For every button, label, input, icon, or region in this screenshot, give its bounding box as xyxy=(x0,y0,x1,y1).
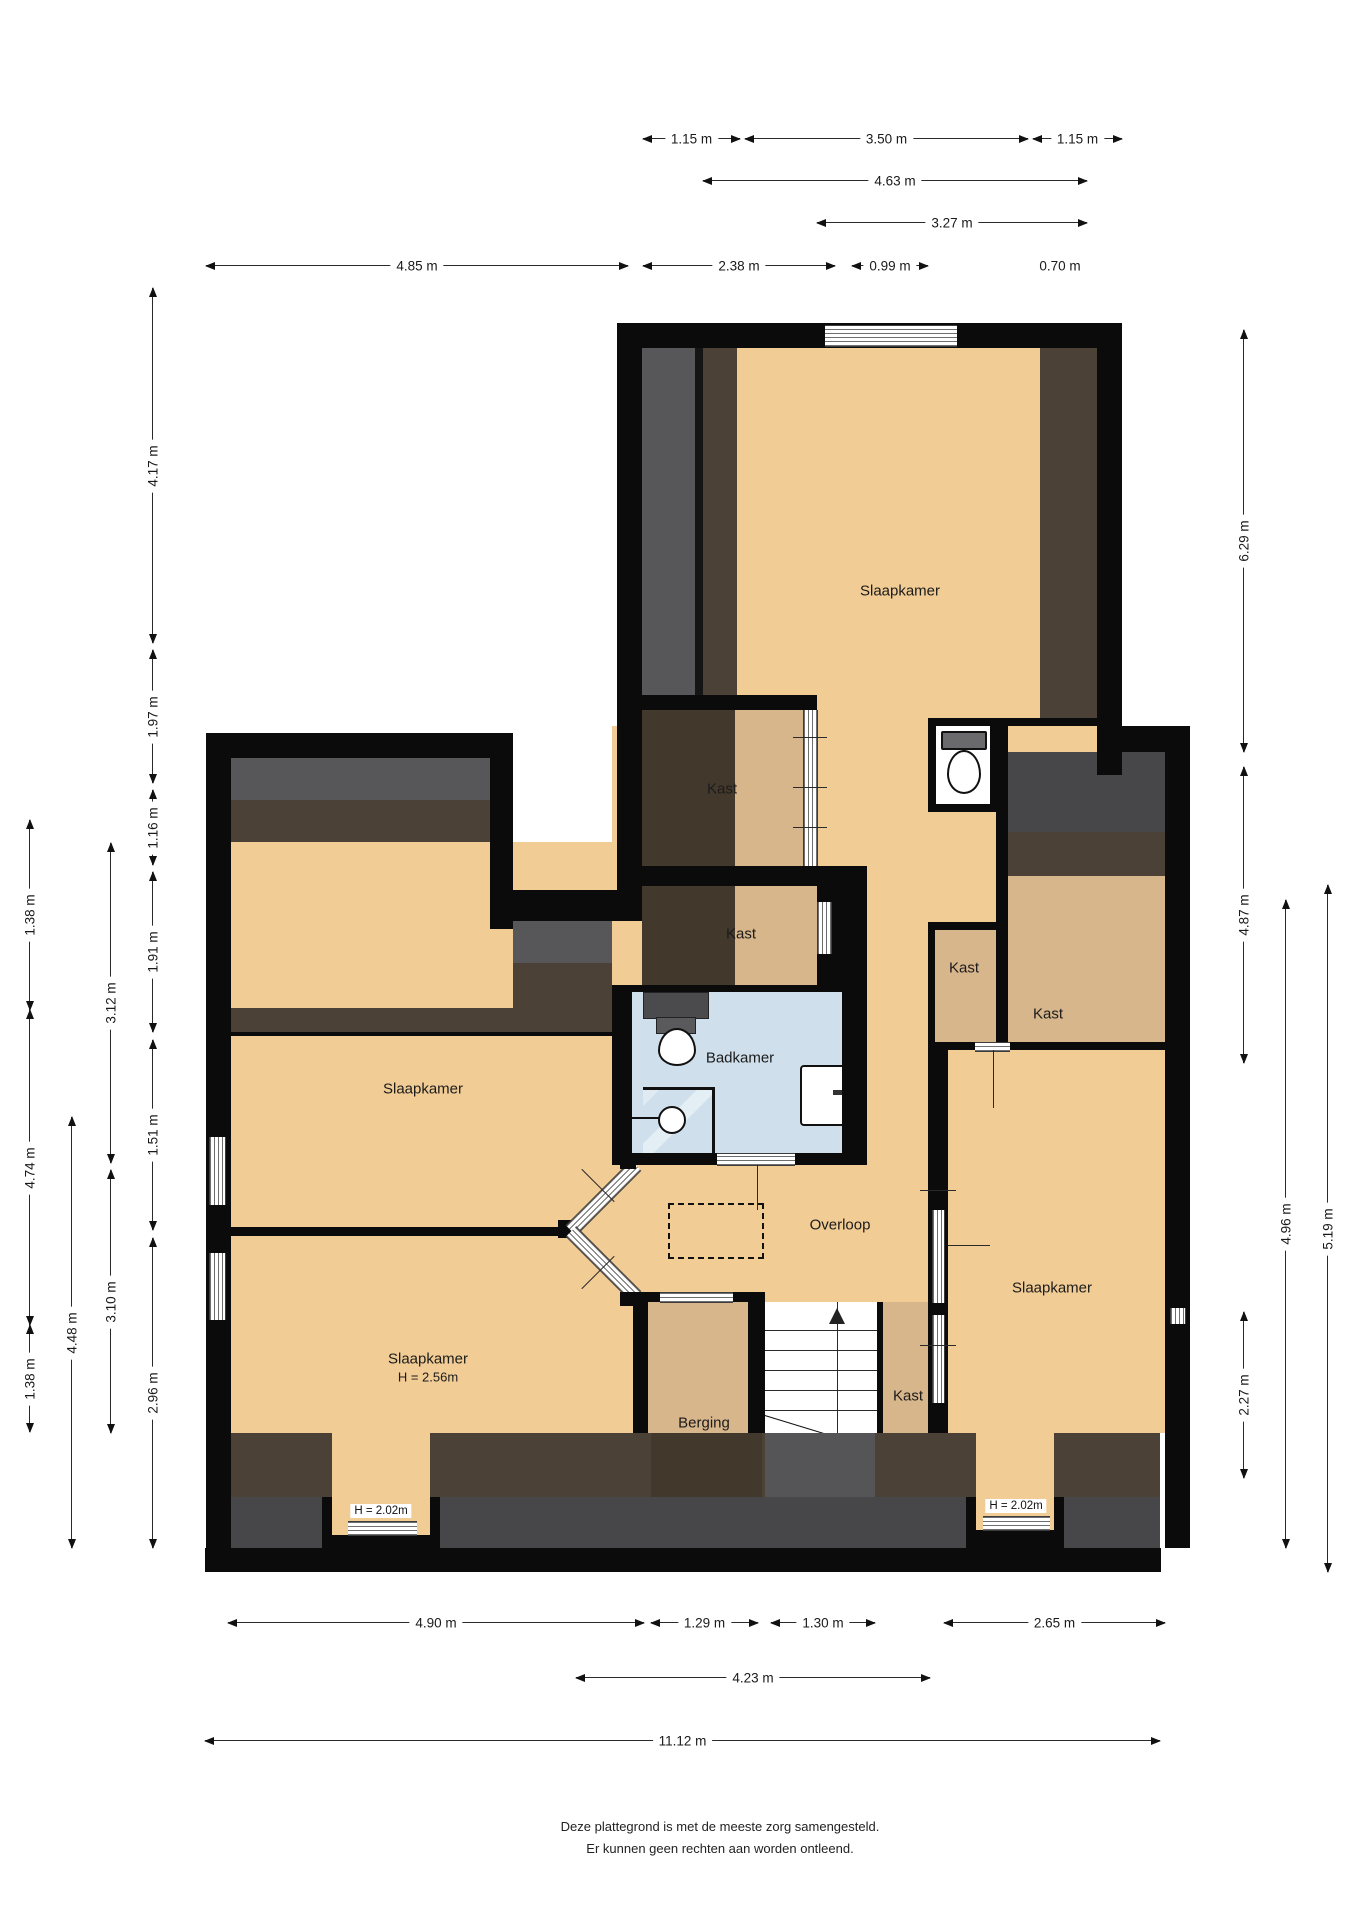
dimension-value: 2.27 m xyxy=(1237,1368,1252,1421)
wall xyxy=(842,992,867,1160)
arrowhead-down-icon xyxy=(149,774,157,784)
dimension-vertical: 4.48 m xyxy=(71,1117,72,1548)
dimension-value: 1.91 m xyxy=(146,925,161,978)
arrowhead-right-icon xyxy=(1156,1619,1166,1627)
dimension-vertical: 2.96 m xyxy=(152,1238,153,1548)
dimension-value: 4.23 m xyxy=(726,1671,779,1686)
arrowhead-right-icon xyxy=(1078,219,1088,227)
arrowhead-down-icon xyxy=(107,1154,115,1164)
dimension-vertical: 1.97 m xyxy=(152,650,153,783)
closet-fill xyxy=(883,1302,932,1433)
arrowhead-right-icon xyxy=(731,135,741,143)
arrowhead-up-icon xyxy=(149,871,157,881)
wall xyxy=(490,890,617,921)
toilet-icon xyxy=(941,731,987,750)
dimension-value: 3.27 m xyxy=(925,216,978,231)
arrowhead-left-icon xyxy=(642,262,652,270)
wall xyxy=(976,1530,1054,1548)
dimension-value: 3.12 m xyxy=(104,976,119,1029)
washbasin-icon xyxy=(800,1065,846,1126)
wall xyxy=(206,733,513,758)
disclaimer-line-1: Deze plattegrond is met de meeste zorg s… xyxy=(561,1816,880,1838)
dimension-horizontal: 4.23 m xyxy=(576,1677,930,1678)
dimension-vertical: 1.91 m xyxy=(152,872,153,1032)
dimension-horizontal: 1.29 m xyxy=(651,1622,758,1623)
dimension-horizontal: 4.63 m xyxy=(703,180,1087,181)
arrowhead-up-icon xyxy=(26,1009,34,1019)
slope-zone xyxy=(231,758,490,800)
arrowhead-up-icon xyxy=(149,287,157,297)
height-box: H = 2.02m xyxy=(985,1499,1046,1513)
arrowhead-right-icon xyxy=(919,262,929,270)
slope-zone xyxy=(513,963,612,1008)
arrowhead-down-icon xyxy=(26,1423,34,1433)
arrowhead-left-icon xyxy=(642,135,652,143)
dimension-vertical: 3.12 m xyxy=(110,843,111,1163)
dimension-value: 1.38 m xyxy=(23,1352,38,1405)
arrowhead-down-icon xyxy=(149,856,157,866)
dimension-value: 3.10 m xyxy=(104,1275,119,1328)
slope-zone xyxy=(1008,832,1180,876)
window-tick xyxy=(793,827,827,828)
wall xyxy=(998,718,1122,726)
window xyxy=(983,1516,1050,1531)
dimension-value: 3.50 m xyxy=(860,132,913,147)
window xyxy=(209,1253,226,1320)
dimension-value: 4.87 m xyxy=(1237,888,1252,941)
arrowhead-left-icon xyxy=(770,1619,780,1627)
stair-tread xyxy=(765,1330,877,1331)
cabinet xyxy=(643,992,709,1019)
room-label: Berging xyxy=(678,1415,730,1434)
dimension-vertical: 1.38 m xyxy=(29,1325,30,1432)
window-tick xyxy=(793,737,827,738)
shower-icon xyxy=(658,1106,686,1134)
arrowhead-left-icon xyxy=(575,1674,585,1682)
wall xyxy=(612,985,867,992)
wall xyxy=(231,1032,630,1036)
dimension-vertical: 2.27 m xyxy=(1243,1312,1244,1478)
arrowhead-left-icon xyxy=(816,219,826,227)
arrowhead-down-icon xyxy=(149,1023,157,1033)
dimension-value: 4.63 m xyxy=(868,174,921,189)
dimension-value: 4.17 m xyxy=(146,439,161,492)
dimension-value: 0.99 m xyxy=(863,259,916,274)
door xyxy=(817,902,832,954)
dimension-horizontal: 1.15 m xyxy=(643,138,740,139)
arrowhead-up-icon xyxy=(149,649,157,659)
arrowhead-right-icon xyxy=(1113,135,1123,143)
dimension-value: 1.16 m xyxy=(146,801,161,854)
toilet-icon xyxy=(947,750,981,794)
arrowhead-up-icon xyxy=(107,1169,115,1179)
arrowhead-up-icon xyxy=(1240,1311,1248,1321)
dimension-value: 1.38 m xyxy=(23,888,38,941)
room-label: Badkamer xyxy=(706,1050,774,1069)
slope-zone xyxy=(231,1008,630,1032)
wall xyxy=(205,1548,1161,1572)
room-label: Slaapkamer xyxy=(1012,1280,1092,1299)
wall xyxy=(224,1227,572,1236)
dashed-outline xyxy=(668,1203,764,1259)
arrowhead-down-icon xyxy=(107,1424,115,1434)
arrowhead-right-icon xyxy=(866,1619,876,1627)
dimension-horizontal: 1.15 m xyxy=(1033,138,1122,139)
window xyxy=(932,1210,945,1303)
arrowhead-down-icon xyxy=(1282,1539,1290,1549)
window xyxy=(803,710,818,866)
window xyxy=(209,1137,226,1205)
wall xyxy=(996,718,1008,1042)
arrowhead-up-icon xyxy=(1240,766,1248,776)
slope-zone xyxy=(231,800,490,842)
arrowhead-right-icon xyxy=(1019,135,1029,143)
stairs-arrow-icon xyxy=(829,1308,845,1324)
dimension-vertical: 4.17 m xyxy=(152,288,153,643)
arrowhead-up-icon xyxy=(68,1116,76,1126)
washbasin-icon xyxy=(833,1090,842,1095)
dimension-value: 4.74 m xyxy=(23,1141,38,1194)
arrowhead-right-icon xyxy=(749,1619,759,1627)
window xyxy=(348,1521,417,1536)
stair-tread xyxy=(765,1390,877,1391)
room-height-note: H = 2.56m xyxy=(388,1369,468,1385)
dimension-horizontal: 11.12 m xyxy=(205,1740,1160,1741)
wall xyxy=(928,922,998,930)
window xyxy=(932,1315,945,1403)
dimension-vertical: 3.10 m xyxy=(110,1170,111,1433)
wall xyxy=(620,1155,636,1169)
slope-zone xyxy=(513,921,612,963)
room-label: SlaapkamerH = 2.56m xyxy=(388,1351,468,1386)
disclaimer-text: Deze plattegrond is met de meeste zorg s… xyxy=(561,1816,880,1860)
wall xyxy=(928,930,935,1042)
wall xyxy=(1165,726,1190,1548)
room-label: Kast xyxy=(1033,1006,1063,1025)
wall xyxy=(430,1497,440,1548)
door-swing xyxy=(948,1245,990,1246)
dimension-vertical: 6.29 m xyxy=(1243,330,1244,752)
room-label: Kast xyxy=(707,781,737,800)
arrowhead-up-icon xyxy=(149,1237,157,1247)
wall xyxy=(748,1302,765,1433)
wall xyxy=(322,1497,332,1548)
dimension-vertical: 4.96 m xyxy=(1285,900,1286,1548)
dimension-value: 1.51 m xyxy=(146,1108,161,1161)
dimension-value: 6.29 m xyxy=(1237,514,1252,567)
slope-zone xyxy=(703,348,737,710)
dimension-value: 5.19 m xyxy=(1321,1202,1336,1255)
stair-tread xyxy=(765,1370,877,1371)
arrowhead-down-icon xyxy=(1240,1469,1248,1479)
arrowhead-right-icon xyxy=(1078,177,1088,185)
dimension-value: 4.48 m xyxy=(65,1306,80,1359)
room-label: Kast xyxy=(726,926,756,945)
arrowhead-left-icon xyxy=(205,262,215,270)
door-swing xyxy=(993,1050,994,1108)
dimension-vertical: 4.87 m xyxy=(1243,767,1244,1063)
wall xyxy=(633,1292,648,1433)
slope-zone xyxy=(642,348,695,700)
closet-fill xyxy=(1003,876,1180,1042)
arrowhead-up-icon xyxy=(1240,329,1248,339)
closet-fill xyxy=(935,930,998,1042)
window xyxy=(825,325,957,347)
room-label: Slaapkamer xyxy=(860,583,940,602)
window-tick xyxy=(920,1345,956,1346)
disclaimer-line-2: Er kunnen geen rechten aan worden ontlee… xyxy=(561,1838,880,1860)
arrowhead-up-icon xyxy=(1324,884,1332,894)
dimension-horizontal: 4.85 m xyxy=(206,265,628,266)
arrowhead-left-icon xyxy=(650,1619,660,1627)
arrowhead-left-icon xyxy=(744,135,754,143)
arrowhead-down-icon xyxy=(149,1539,157,1549)
dimension-vertical: 1.38 m xyxy=(29,820,30,1010)
slope-zone xyxy=(1008,752,1180,832)
door xyxy=(717,1153,795,1166)
dimension-horizontal: 1.30 m xyxy=(771,1622,875,1623)
arrowhead-left-icon xyxy=(1032,135,1042,143)
dimension-horizontal: 4.90 m xyxy=(228,1622,644,1623)
arrowhead-right-icon xyxy=(619,262,629,270)
wall xyxy=(966,1497,976,1548)
arrowhead-up-icon xyxy=(26,1324,34,1334)
wall xyxy=(332,1535,430,1549)
window xyxy=(1170,1308,1186,1324)
arrowhead-up-icon xyxy=(26,819,34,829)
arrowhead-left-icon xyxy=(851,262,861,270)
arrowhead-down-icon xyxy=(1240,743,1248,753)
toilet-icon xyxy=(658,1028,696,1066)
dimension-vertical: 5.19 m xyxy=(1327,885,1328,1572)
room-label: Overloop xyxy=(810,1217,871,1236)
dimension-vertical: 1.16 m xyxy=(152,790,153,865)
dimension-value: 1.97 m xyxy=(146,690,161,743)
stairs xyxy=(765,1302,877,1433)
window-tick xyxy=(793,787,827,788)
dimension-value: 2.38 m xyxy=(712,259,765,274)
arrowhead-left-icon xyxy=(702,177,712,185)
wall xyxy=(877,1302,883,1433)
arrowhead-up-icon xyxy=(149,1039,157,1049)
arrowhead-down-icon xyxy=(1240,1054,1248,1064)
stair-tread xyxy=(765,1350,877,1351)
dimension-value: 1.29 m xyxy=(678,1616,731,1631)
arrowhead-up-icon xyxy=(1282,899,1290,909)
arrowhead-down-icon xyxy=(1324,1563,1332,1573)
wall xyxy=(617,323,642,921)
dimension-value: 4.90 m xyxy=(409,1616,462,1631)
wall xyxy=(617,866,867,886)
dimension-value: 0.70 m xyxy=(1039,259,1080,274)
arrowhead-down-icon xyxy=(149,1221,157,1231)
arrowhead-right-icon xyxy=(635,1619,645,1627)
arrowhead-right-icon xyxy=(1151,1737,1161,1745)
window-tick xyxy=(920,1190,956,1191)
room-label: Kast xyxy=(949,960,979,979)
dimension-horizontal: 2.65 m xyxy=(944,1622,1165,1623)
dimension-value: 4.85 m xyxy=(390,259,443,274)
dimension-value: 11.12 m xyxy=(653,1734,713,1749)
wall xyxy=(928,1042,1165,1050)
arrowhead-up-icon xyxy=(149,789,157,799)
dimension-value: 1.30 m xyxy=(796,1616,849,1631)
dimension-horizontal: 0.99 m xyxy=(852,265,928,266)
dimension-horizontal: 2.38 m xyxy=(643,265,835,266)
slope-zone xyxy=(695,348,703,700)
wall xyxy=(1054,1497,1064,1548)
door xyxy=(660,1292,733,1303)
arrowhead-right-icon xyxy=(921,1674,931,1682)
wall xyxy=(832,886,867,988)
slope-zone xyxy=(1040,348,1097,775)
dimension-value: 2.65 m xyxy=(1028,1616,1081,1631)
arrowhead-down-icon xyxy=(149,634,157,644)
closet-fill xyxy=(642,886,735,988)
arrowhead-left-icon xyxy=(943,1619,953,1627)
closet-fill xyxy=(735,710,803,866)
dimension-horizontal: 3.50 m xyxy=(745,138,1028,139)
arrowhead-down-icon xyxy=(68,1539,76,1549)
floor-plan-page: SlaapkamerKastKastKastKastBadkamerSlaapk… xyxy=(0,0,1358,1920)
wall xyxy=(930,1403,945,1415)
dimension-value: 1.15 m xyxy=(1051,132,1104,147)
dimension-vertical: 1.51 m xyxy=(152,1040,153,1230)
wall xyxy=(1097,323,1122,775)
room-label: Kast xyxy=(893,1388,923,1407)
arrowhead-left-icon xyxy=(204,1737,214,1745)
dimension-value: 1.15 m xyxy=(665,132,718,147)
dimension-value: 4.96 m xyxy=(1279,1197,1294,1250)
room-label: Slaapkamer xyxy=(383,1081,463,1100)
dimension-vertical: 4.74 m xyxy=(29,1010,30,1325)
arrowhead-right-icon xyxy=(826,262,836,270)
dimension-horizontal: 3.27 m xyxy=(817,222,1087,223)
stair-tread xyxy=(765,1410,877,1411)
dimension-value: 2.96 m xyxy=(146,1366,161,1419)
height-box: H = 2.02m xyxy=(350,1504,411,1518)
wall xyxy=(617,695,817,710)
wall xyxy=(612,992,632,1165)
arrowhead-left-icon xyxy=(227,1619,237,1627)
arrowhead-up-icon xyxy=(107,842,115,852)
